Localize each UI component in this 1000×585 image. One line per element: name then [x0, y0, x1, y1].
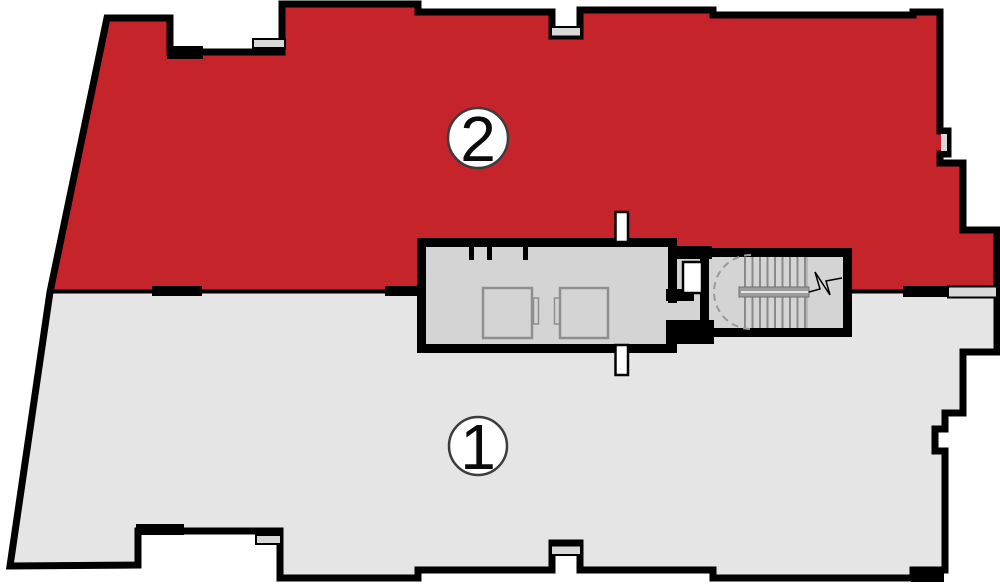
wall-stub-above-core [616, 212, 629, 242]
elevator-door-jamb-left [534, 298, 539, 324]
wall-core-stair-bottom [666, 320, 714, 344]
wall-chunk-bottom-right [911, 567, 944, 582]
unit-2-label: 2 [460, 103, 496, 175]
party-wall-chunk-b [385, 286, 418, 296]
sill-top-notch [551, 27, 581, 37]
sill-top-left [253, 39, 285, 48]
elevator-door-jamb-right [555, 298, 560, 324]
wall-stub-below-core [616, 345, 629, 375]
sill-bottom-notch [551, 546, 581, 556]
wall-core-stair-top [670, 246, 712, 259]
sill-division-right [948, 287, 997, 298]
elevator-2 [560, 288, 608, 338]
floor-plan-canvas: 2 1 [0, 0, 1000, 585]
party-wall-chunk-a [152, 286, 202, 296]
sill-right-bump [941, 134, 947, 151]
elevator-core [422, 243, 673, 349]
elevator-1 [483, 288, 532, 338]
floor-plan-svg: 2 1 [0, 0, 1000, 585]
sill-bottom-left [256, 535, 281, 544]
wall-chunk-top-left [167, 46, 203, 59]
duct-shaft [683, 262, 702, 293]
wall-chunk-bottom-left [136, 524, 184, 535]
unit-1-label: 1 [460, 411, 496, 483]
core-door-opening [666, 303, 679, 322]
party-wall-chunk-c [903, 286, 949, 297]
